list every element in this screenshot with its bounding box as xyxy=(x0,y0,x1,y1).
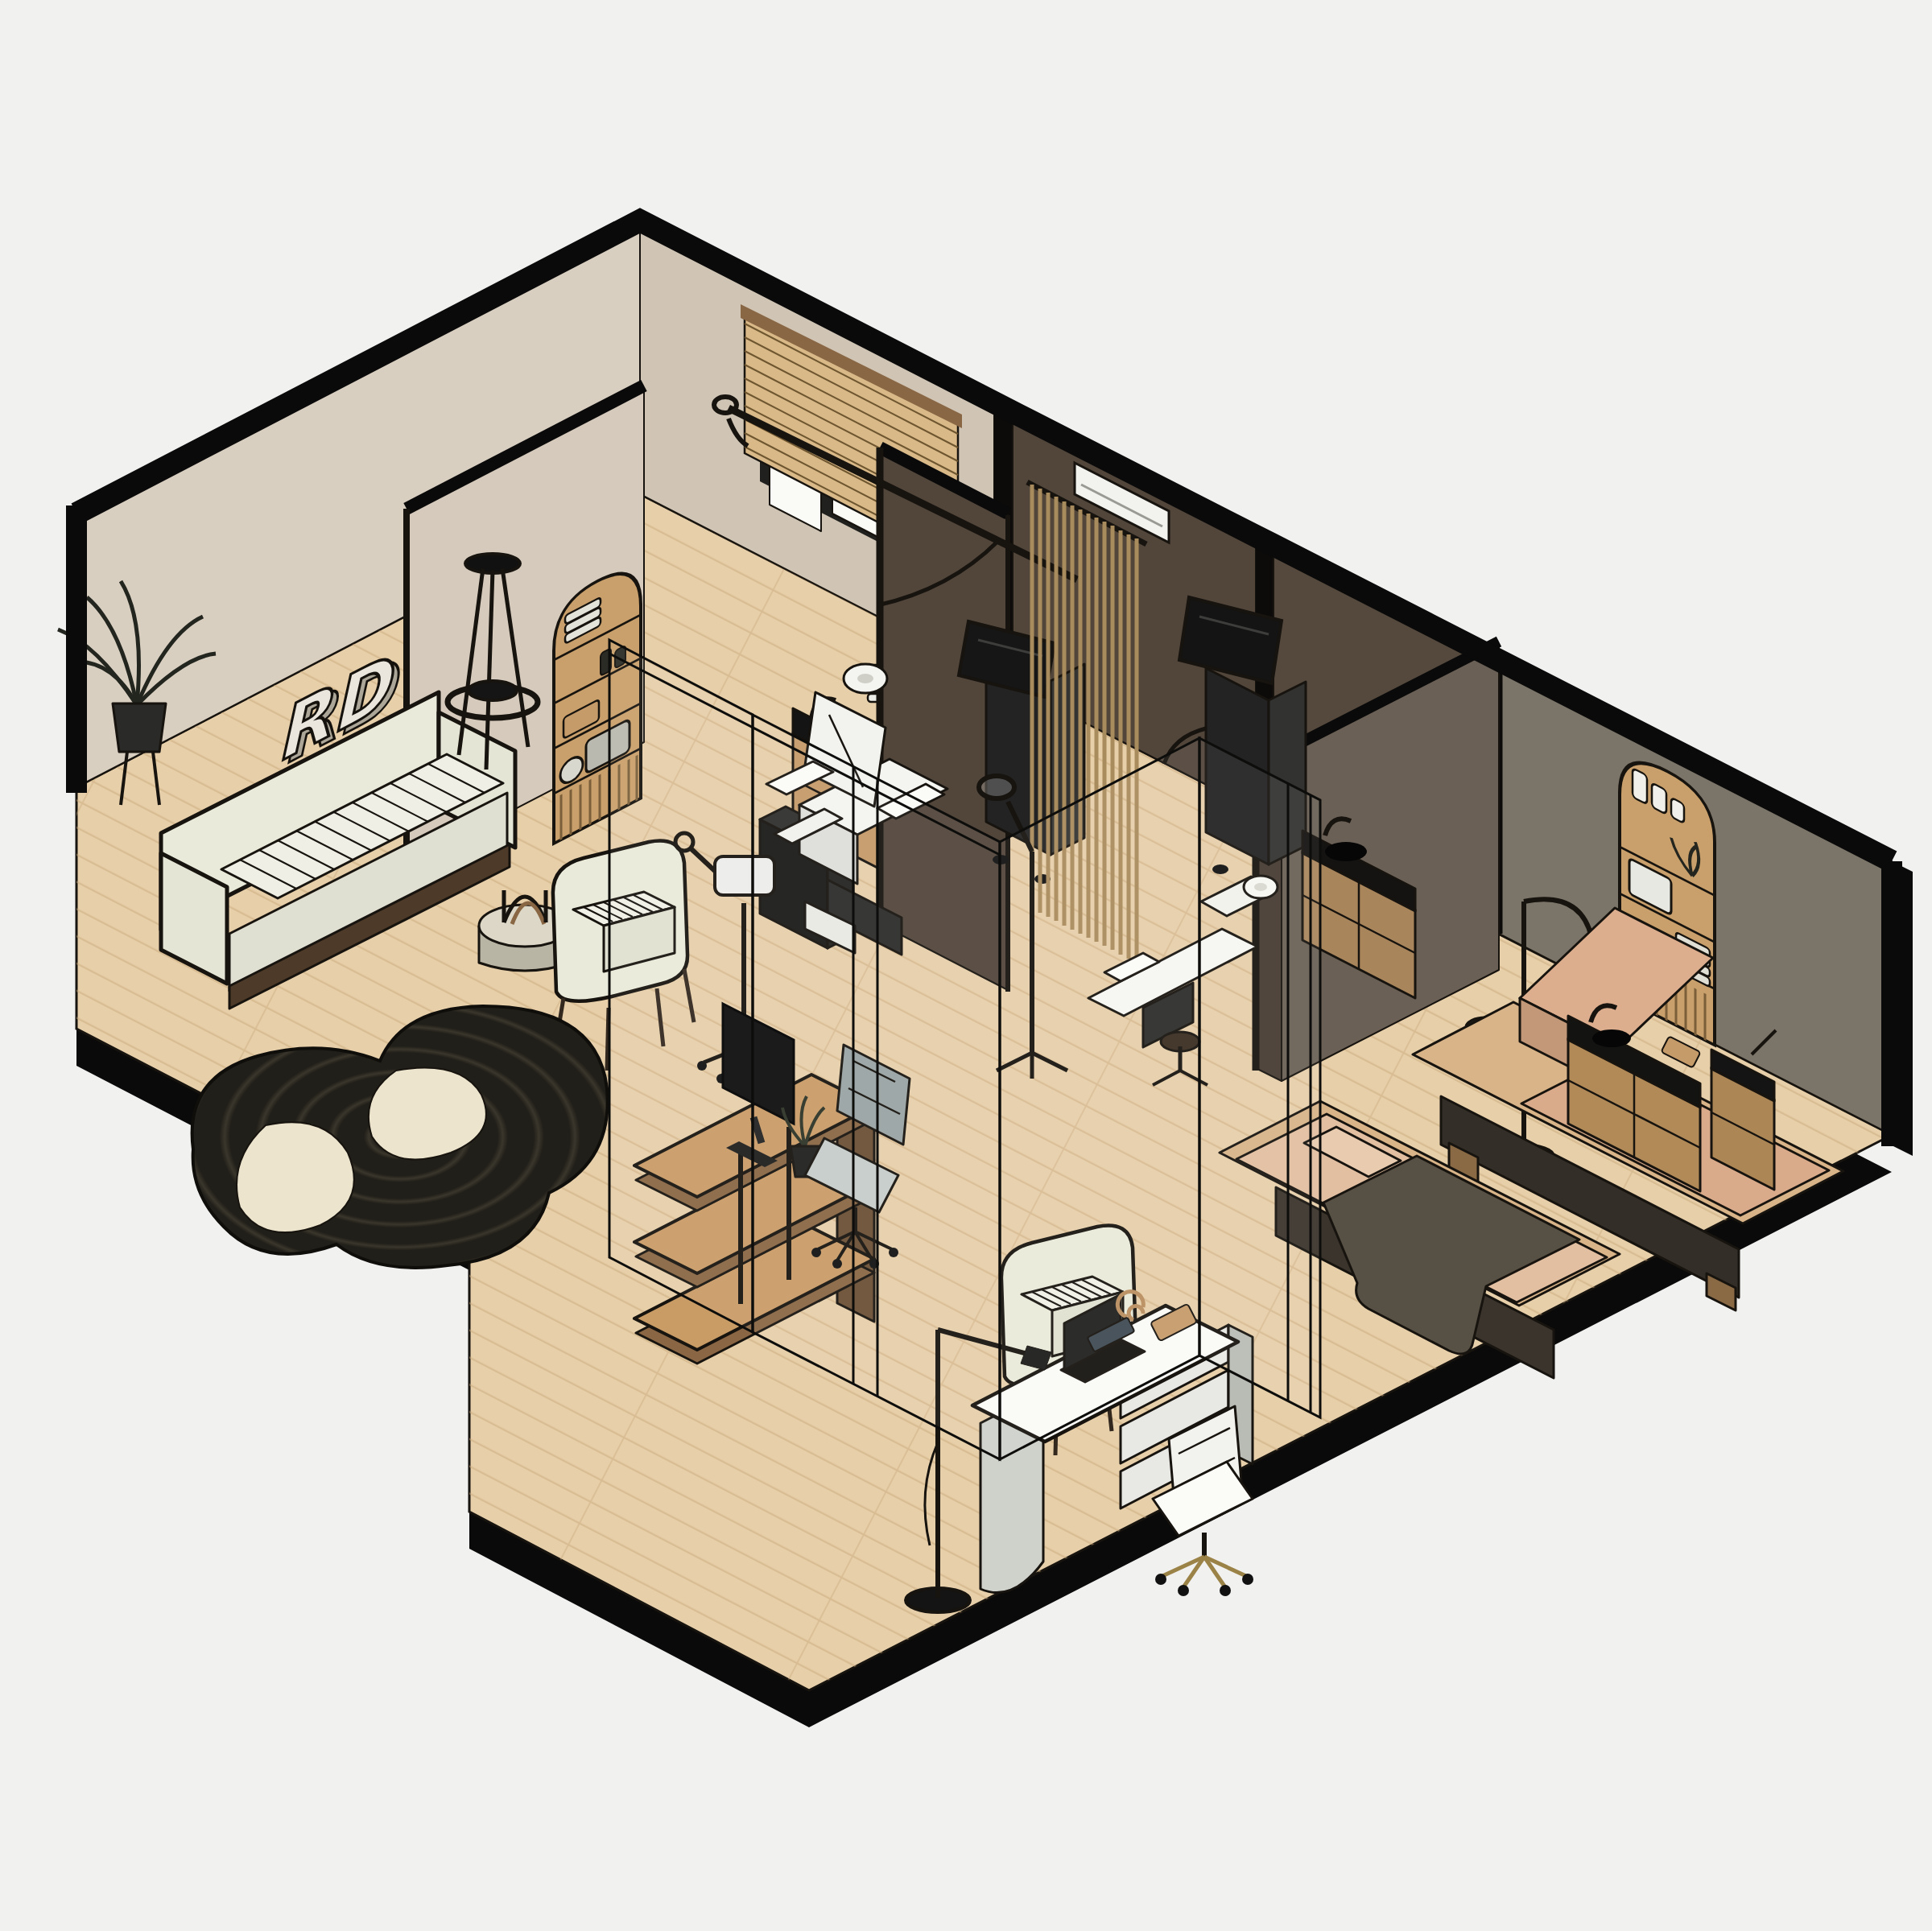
rug-blob-1 xyxy=(237,1122,354,1232)
glass-pane-1 xyxy=(609,640,753,1332)
cabinet2-sink xyxy=(1325,842,1367,861)
glass-pane-4 xyxy=(1199,738,1320,1417)
glass-pane-3 xyxy=(1000,738,1199,1459)
plant-pot xyxy=(113,703,166,752)
cabinet3-sink xyxy=(1592,1029,1631,1047)
scene-svg: RD RD xyxy=(0,0,1932,1931)
clinic-isometric-render: RD RD xyxy=(0,0,1932,1931)
lamp-shade xyxy=(469,681,517,700)
